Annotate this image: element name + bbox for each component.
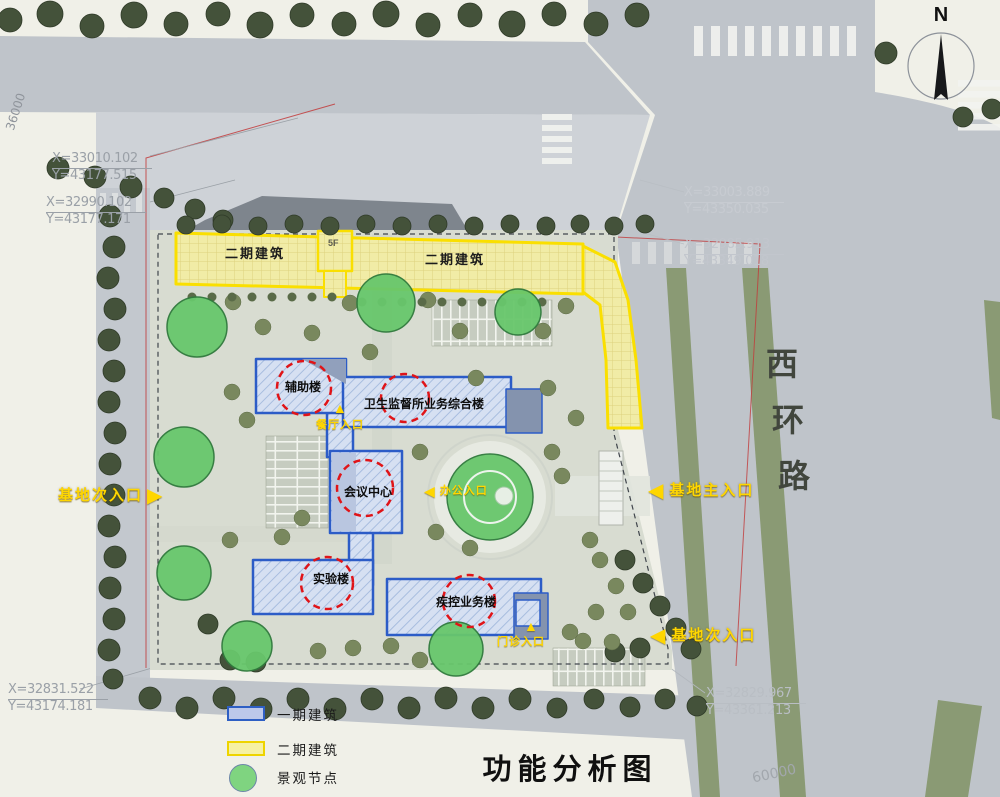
- coordinate-label-top-left-1: X=33010.102 Y=43177.515: [52, 152, 152, 184]
- entrance-office: ◀ 办公入口: [424, 484, 488, 498]
- arrow-left-icon: ◀: [424, 484, 436, 498]
- arrow-up-icon: ▲: [333, 401, 347, 415]
- main-gate: [599, 451, 623, 525]
- building-label-comprehensive: 卫生监督所业务综合楼: [364, 398, 484, 412]
- functional-analysis-plan: X=33010.102 Y=43177.515 X=32990.102 Y=43…: [0, 0, 1000, 797]
- coordinate-x-value: X=33003.889: [684, 186, 784, 203]
- arrow-left-icon: ◀: [650, 626, 667, 646]
- entrance-east-main: ◀ 基地主入口: [648, 481, 754, 501]
- entrance-west-secondary: 基地次入口 ▶: [58, 486, 164, 506]
- entrance-label: 办公入口: [440, 485, 488, 498]
- coordinate-y-value: Y=43349.018: [684, 255, 784, 270]
- road-name-char-3: 路: [778, 458, 810, 495]
- coordinate-x-value: X=32990.102: [46, 196, 146, 213]
- building-label-auxiliary: 辅助楼: [285, 381, 321, 395]
- coordinate-label-top-mid-2: X=32985.913 Y=43349.018: [684, 238, 784, 270]
- legend-label-phase2: 二期建筑: [277, 743, 339, 759]
- entrance-east-secondary: ◀ 基地次入口: [650, 626, 756, 646]
- coordinate-y-value: Y=43361.213: [706, 704, 806, 719]
- arrow-up-icon: ▲: [524, 619, 538, 633]
- coordinate-x-value: X=32831.522: [8, 683, 108, 700]
- legend-swatch-phase2: [227, 741, 265, 756]
- coordinate-y-value: Y=43177.515: [52, 169, 152, 184]
- arrow-right-icon: ▶: [147, 486, 164, 506]
- entrance-label: 基地次入口: [671, 627, 756, 644]
- coordinate-label-bottom-right: X=32829.967 Y=43361.213: [706, 687, 806, 719]
- coordinate-x-value: X=32829.967: [706, 687, 806, 704]
- coordinate-label-bottom-left: X=32831.522 Y=43174.181: [8, 683, 108, 715]
- road-name-char-1: 西: [766, 346, 798, 383]
- coordinate-y-value: Y=43174.181: [8, 700, 108, 715]
- entrance-label: 基地主入口: [669, 482, 754, 499]
- legend-label-node: 景观节点: [277, 771, 339, 787]
- coordinate-y-value: Y=43350.035: [684, 203, 784, 218]
- entrance-label: 基地次入口: [58, 487, 143, 504]
- floors-label: 5F: [328, 238, 339, 248]
- site-plan-drawing: [0, 0, 1000, 797]
- phase2-label-right: 二期建筑: [425, 253, 485, 268]
- coordinate-label-top-left-2: X=32990.102 Y=43177.171: [46, 196, 146, 228]
- building-label-laboratory: 实验楼: [313, 573, 349, 587]
- entrance-clinic: 门诊入口: [497, 636, 545, 649]
- coordinate-x-value: X=33010.102: [52, 152, 152, 169]
- coordinate-label-top-mid-1: X=33003.889 Y=43350.035: [684, 186, 784, 218]
- coordinate-y-value: Y=43177.171: [46, 213, 146, 228]
- legend-swatch-phase1: [227, 706, 265, 721]
- phase2-label-left: 二期建筑: [225, 247, 285, 262]
- building-label-conference: 会议中心: [344, 486, 392, 500]
- legend-label-phase1: 一期建筑: [277, 708, 339, 724]
- north-label: N: [934, 4, 948, 27]
- entrance-canteen: 餐厅入口: [316, 419, 364, 432]
- legend-swatch-node: [229, 764, 257, 792]
- building-label-cdc: 疾控业务楼: [436, 596, 496, 610]
- arrow-left-icon: ◀: [648, 481, 665, 501]
- page-title: 功能分析图: [482, 754, 657, 787]
- coordinate-x-value: X=32985.913: [684, 238, 784, 255]
- road-name-char-2: 环: [772, 402, 804, 439]
